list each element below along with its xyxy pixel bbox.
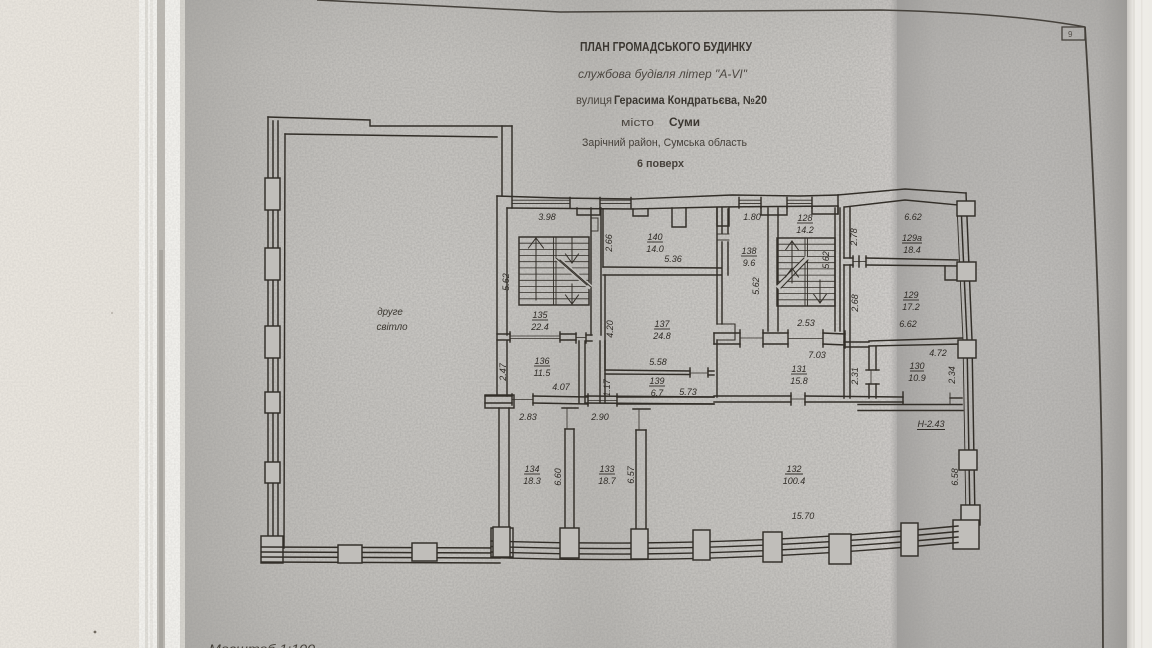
svg-text:18.7: 18.7 (598, 476, 617, 486)
svg-text:18.4: 18.4 (903, 245, 921, 255)
svg-text:6.58: 6.58 (950, 468, 960, 486)
svg-text:136: 136 (534, 356, 549, 366)
svg-text:130: 130 (909, 361, 924, 371)
svg-text:129а: 129а (902, 233, 922, 243)
svg-text:128: 128 (797, 213, 812, 223)
svg-text:132: 132 (786, 464, 801, 474)
svg-text:2.47: 2.47 (498, 362, 508, 382)
svg-text:14.2: 14.2 (796, 225, 814, 235)
svg-text:1.80: 1.80 (743, 212, 761, 222)
svg-text:10.9: 10.9 (908, 373, 926, 383)
svg-text:6.62: 6.62 (904, 212, 922, 222)
svg-text:Н-2.43: Н-2.43 (917, 419, 944, 429)
svg-text:9.6: 9.6 (743, 258, 756, 268)
svg-text:134: 134 (524, 464, 539, 474)
svg-text:15.8: 15.8 (790, 376, 808, 386)
svg-text:4.72: 4.72 (929, 348, 947, 358)
svg-text:2.68: 2.68 (850, 294, 860, 313)
svg-text:131: 131 (791, 364, 806, 374)
svg-text:22.4: 22.4 (530, 322, 549, 332)
svg-text:15.70: 15.70 (792, 511, 815, 521)
svg-text:5.58: 5.58 (649, 357, 667, 367)
svg-text:6.62: 6.62 (899, 319, 917, 329)
svg-text:6.7: 6.7 (651, 388, 665, 398)
svg-text:1.17: 1.17 (602, 378, 612, 397)
svg-text:2.90: 2.90 (590, 412, 609, 422)
svg-text:100.4: 100.4 (783, 476, 806, 486)
svg-text:5.62: 5.62 (501, 273, 511, 291)
svg-text:6.57: 6.57 (626, 465, 636, 484)
svg-text:137: 137 (654, 319, 670, 329)
svg-text:світло: світло (376, 322, 408, 333)
svg-text:5.36: 5.36 (664, 254, 682, 264)
svg-text:24.8: 24.8 (652, 331, 671, 341)
svg-text:7.03: 7.03 (808, 350, 826, 360)
svg-text:9: 9 (1068, 30, 1073, 39)
svg-text:129: 129 (903, 290, 918, 300)
svg-text:2.83: 2.83 (518, 412, 537, 422)
svg-text:11.5: 11.5 (534, 368, 552, 378)
svg-text:друге: друге (377, 307, 403, 318)
svg-text:2.53: 2.53 (796, 318, 815, 328)
svg-text:14.0: 14.0 (646, 244, 664, 254)
svg-text:4.20: 4.20 (605, 320, 615, 338)
svg-text:Герасима Кондратьєва, №20: Герасима Кондратьєва, №20 (614, 94, 767, 107)
svg-text:Масштаб 1:100: Масштаб 1:100 (209, 642, 315, 648)
svg-text:місто: місто (621, 117, 654, 129)
svg-text:5.62: 5.62 (821, 251, 831, 269)
svg-text:140: 140 (647, 232, 662, 242)
svg-text:139: 139 (649, 376, 664, 386)
svg-text:Суми: Суми (669, 116, 700, 129)
svg-text:вулиця: вулиця (576, 94, 612, 107)
svg-text:Зарічний район, Сумська област: Зарічний район, Сумська область (582, 137, 747, 149)
svg-text:2.34: 2.34 (947, 366, 957, 385)
svg-text:17.2: 17.2 (902, 302, 920, 312)
svg-text:5.62: 5.62 (751, 277, 761, 295)
svg-text:3.98: 3.98 (538, 212, 556, 222)
svg-text:службова будівля літер "А-VI": службова будівля літер "А-VI" (578, 67, 748, 81)
svg-text:4.07: 4.07 (552, 382, 571, 392)
svg-text:2.66: 2.66 (604, 234, 614, 253)
svg-text:6.60: 6.60 (553, 468, 563, 486)
svg-text:2.31: 2.31 (850, 367, 860, 386)
svg-text:2.78: 2.78 (849, 228, 859, 247)
svg-text:18.3: 18.3 (523, 476, 541, 486)
svg-text:6 поверх: 6 поверх (637, 158, 684, 170)
svg-text:133: 133 (599, 464, 614, 474)
svg-text:135: 135 (532, 310, 548, 320)
svg-text:138: 138 (741, 246, 756, 256)
svg-text:5.73: 5.73 (679, 387, 697, 397)
svg-text:ПЛАН ГРОМАДСЬКОГО БУДИНКУ: ПЛАН ГРОМАДСЬКОГО БУДИНКУ (580, 40, 752, 54)
